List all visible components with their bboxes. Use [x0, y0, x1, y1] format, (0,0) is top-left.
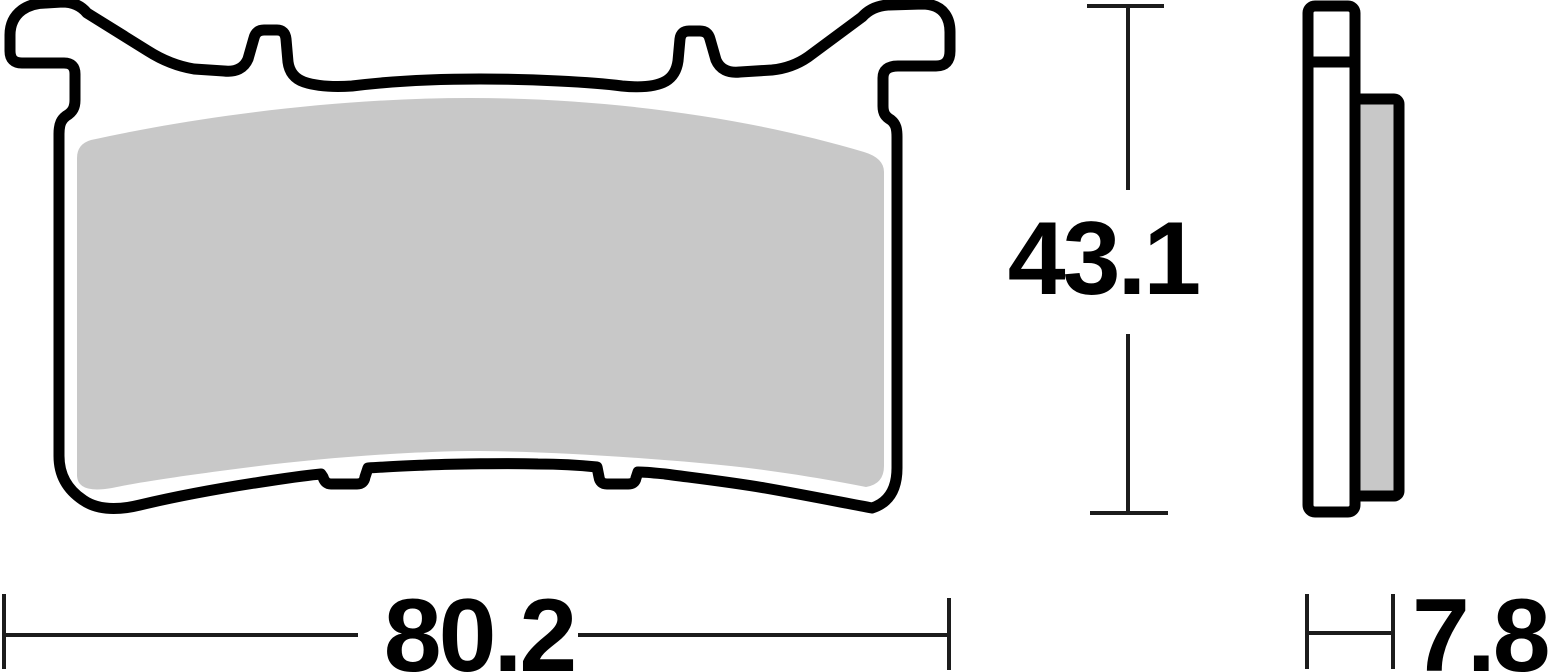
- drawing-canvas: 80.2 43.1 7.8: [0, 0, 1551, 672]
- height-dimension: 43.1: [1008, 6, 1199, 513]
- width-dimension-value: 80.2: [384, 578, 574, 672]
- front-view-friction-material: [77, 98, 884, 490]
- height-dimension-value: 43.1: [1008, 201, 1199, 317]
- thickness-dimension: 7.8: [1307, 578, 1548, 672]
- thickness-dimension-value: 7.8: [1412, 578, 1548, 672]
- width-dimension: 80.2: [4, 578, 949, 672]
- side-view-friction-material: [1355, 99, 1399, 496]
- side-view: [1308, 6, 1399, 512]
- brake-pad-technical-drawing: 80.2 43.1 7.8: [0, 0, 1551, 672]
- front-view: [10, 2, 950, 509]
- side-view-backplate: [1308, 6, 1355, 512]
